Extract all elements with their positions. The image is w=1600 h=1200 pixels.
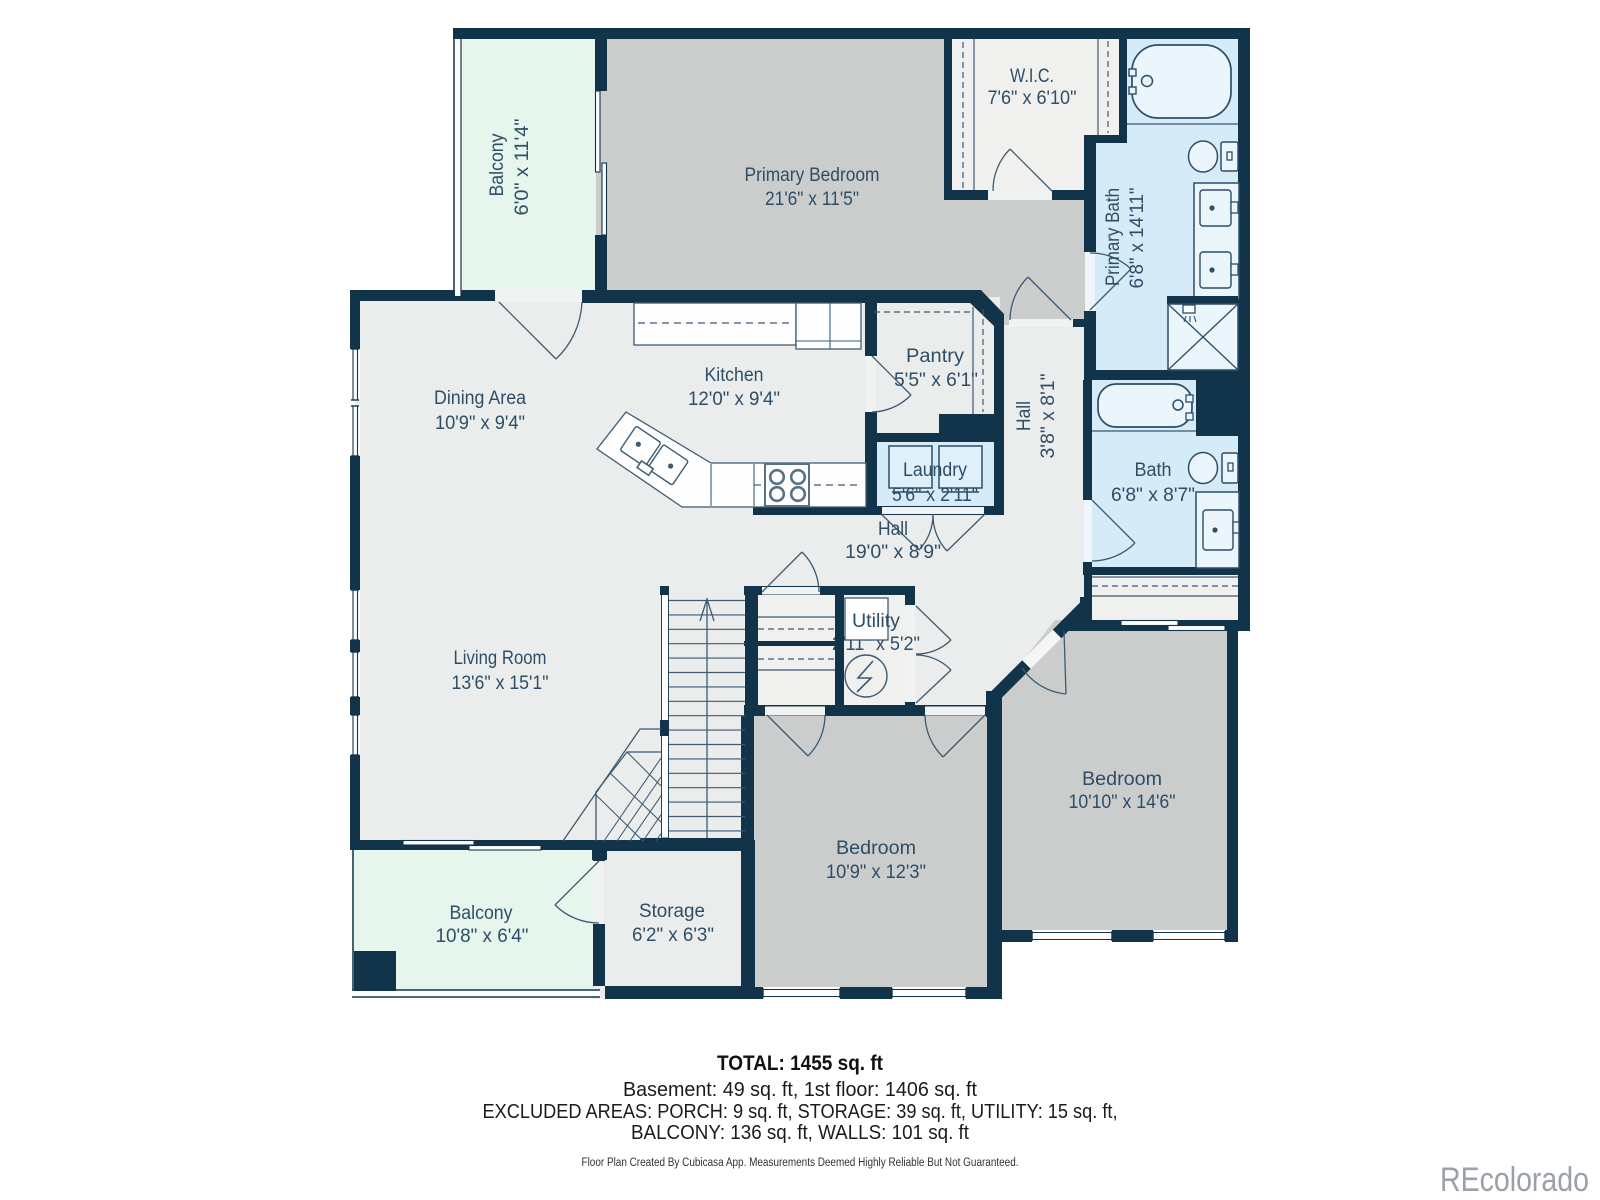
svg-text:19'0" x 8'9": 19'0" x 8'9" (845, 542, 941, 563)
svg-text:6'0" x 11'4": 6'0" x 11'4" (512, 119, 533, 216)
svg-text:12'0" x 9'4": 12'0" x 9'4" (688, 389, 780, 410)
svg-text:Floor Plan Created By Cubicasa: Floor Plan Created By Cubicasa App. Meas… (582, 1157, 1019, 1169)
svg-text:Bedroom: Bedroom (1082, 769, 1162, 790)
svg-text:10'8" x 6'4": 10'8" x 6'4" (436, 926, 529, 947)
svg-text:Balcony: Balcony (487, 133, 508, 196)
svg-text:TOTAL: 1455 sq. ft: TOTAL: 1455 sq. ft (717, 1052, 883, 1075)
svg-text:Bath: Bath (1135, 460, 1172, 481)
svg-text:Storage: Storage (639, 901, 705, 922)
svg-text:10'9" x 9'4": 10'9" x 9'4" (435, 413, 525, 434)
svg-text:Primary Bedroom: Primary Bedroom (745, 165, 880, 186)
svg-text:6'8" x 14'11": 6'8" x 14'11" (1127, 188, 1148, 289)
svg-text:7'6" x 6'10": 7'6" x 6'10" (988, 88, 1077, 109)
svg-text:BALCONY: 136 sq. ft, WALLS: 10: BALCONY: 136 sq. ft, WALLS: 101 sq. ft (631, 1121, 969, 1144)
svg-text:Balcony: Balcony (450, 903, 513, 924)
svg-text:5'5" x 6'1": 5'5" x 6'1" (894, 370, 978, 391)
svg-text:Pantry: Pantry (906, 346, 965, 367)
svg-text:Living Room: Living Room (454, 648, 547, 669)
svg-text:W.I.C.: W.I.C. (1010, 66, 1054, 87)
svg-text:EXCLUDED AREAS: PORCH: 9 sq. f: EXCLUDED AREAS: PORCH: 9 sq. ft, STORAGE… (483, 1100, 1118, 1123)
svg-text:Hall: Hall (878, 519, 908, 540)
svg-text:Utility: Utility (852, 611, 901, 632)
svg-text:3'8" x 8'1": 3'8" x 8'1" (1038, 374, 1059, 459)
svg-text:Primary Bath: Primary Bath (1103, 188, 1124, 286)
svg-text:6'8" x 8'7": 6'8" x 8'7" (1111, 485, 1195, 506)
svg-text:Kitchen: Kitchen (705, 365, 764, 386)
svg-text:5'6" x 2'11": 5'6" x 2'11" (892, 485, 978, 506)
svg-text:21'6" x 11'5": 21'6" x 11'5" (765, 189, 859, 210)
svg-text:Basement: 49 sq. ft, 1st floor: Basement: 49 sq. ft, 1st floor: 1406 sq.… (623, 1078, 977, 1101)
svg-text:Bedroom: Bedroom (836, 838, 916, 859)
svg-text:Laundry: Laundry (903, 460, 967, 481)
svg-text:13'6" x 15'1": 13'6" x 15'1" (452, 673, 549, 694)
svg-text:Dining Area: Dining Area (434, 388, 526, 409)
svg-text:10'9" x 12'3": 10'9" x 12'3" (826, 862, 926, 883)
svg-text:Hall: Hall (1014, 401, 1035, 431)
svg-text:REcolorado: REcolorado (1440, 1161, 1589, 1199)
svg-text:6'2" x 6'3": 6'2" x 6'3" (632, 925, 714, 946)
svg-text:10'10" x 14'6": 10'10" x 14'6" (1069, 792, 1176, 813)
